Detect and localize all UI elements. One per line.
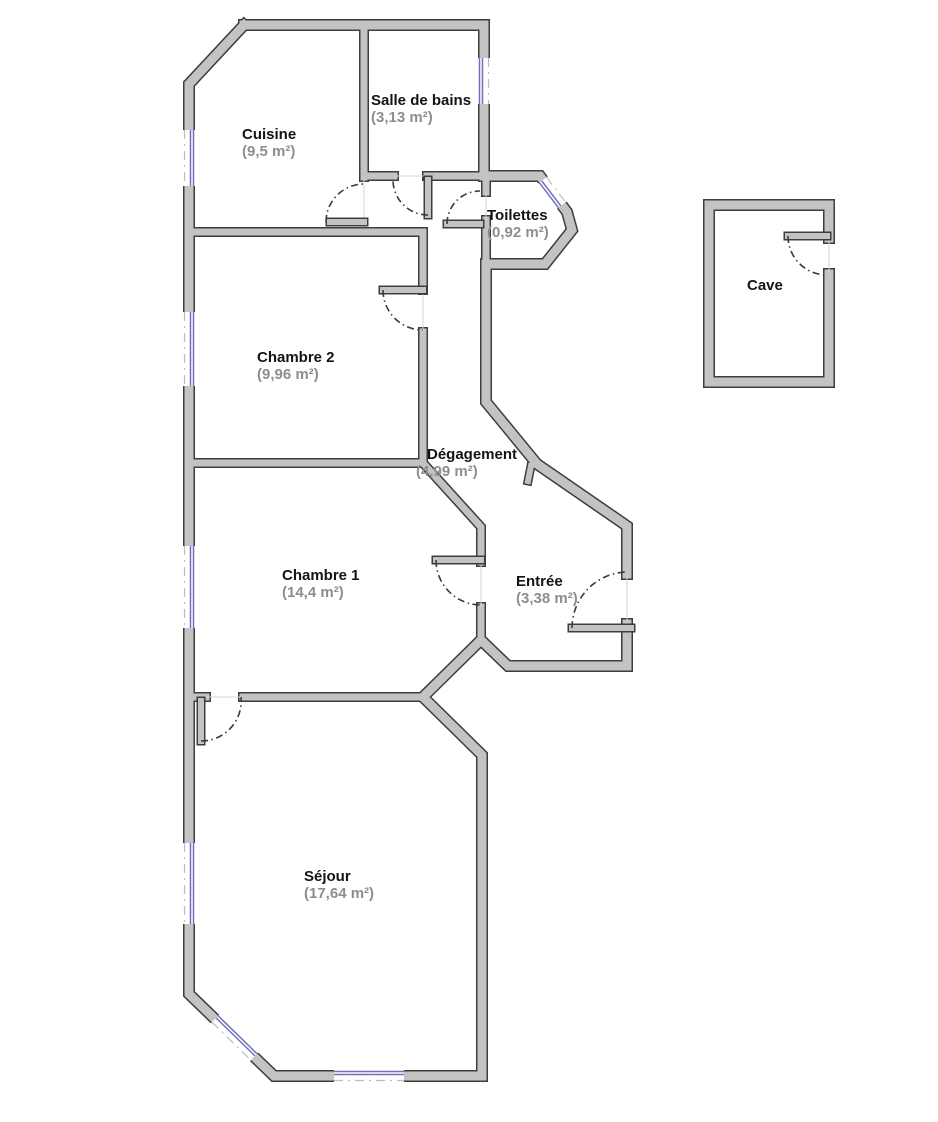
door-arc-entree xyxy=(572,572,627,628)
floor-plan-drawing xyxy=(0,0,938,1122)
window-chambre1 xyxy=(185,546,194,628)
window-toilettes xyxy=(539,177,565,207)
room-area-label: (3,13 m²) xyxy=(371,109,471,126)
room-area-label: (4,99 m²) xyxy=(416,463,517,480)
door-arc-salle-de-bains xyxy=(393,180,428,215)
room-name-label: Séjour xyxy=(304,868,351,885)
room-name-label: Cave xyxy=(747,277,783,294)
room-area-label: (14,4 m²) xyxy=(282,584,360,601)
door-arc-sejour xyxy=(201,697,241,741)
room-label-chambre-2: Chambre 2 (9,96 m²) xyxy=(257,349,335,383)
room-label-cuisine: Cuisine (9,5 m²) xyxy=(242,126,296,160)
window-chambre2 xyxy=(185,312,194,386)
room-area-label: (3,38 m²) xyxy=(516,590,578,607)
room-area-label: (9,5 m²) xyxy=(242,143,296,160)
perimeter-wall-lower-fill xyxy=(189,25,627,1076)
wall-outlines-layer xyxy=(189,25,829,1076)
window-sejour-left xyxy=(185,843,194,924)
room-area-label: (0,92 m²) xyxy=(487,224,549,241)
wall-fill xyxy=(528,466,531,481)
room-area-label: (17,64 m²) xyxy=(304,885,374,902)
floor-plan: Cuisine (9,5 m²) Salle de bains (3,13 m²… xyxy=(0,0,938,1122)
door-arc-chambre2 xyxy=(383,290,423,330)
room-area-label: (9,96 m²) xyxy=(257,366,335,383)
room-label-degagement: Dégagement (4,99 m²) xyxy=(427,446,517,480)
door-arc-toilettes xyxy=(447,191,480,224)
room-label-salle-de-bains: Salle de bains (3,13 m²) xyxy=(371,92,471,126)
door-arc-cave xyxy=(788,236,827,275)
window-salle-de-bains xyxy=(480,58,489,104)
room-label-entree: Entrée (3,38 m²) xyxy=(516,573,578,607)
room-name-label: Chambre 2 xyxy=(257,349,335,366)
room-name-label: Entrée xyxy=(516,573,563,590)
perimeter-wall-lower xyxy=(189,25,627,1076)
door-arc-chambre1 xyxy=(436,560,481,605)
room-name-label: Salle de bains xyxy=(371,92,471,109)
room-name-label: Toilettes xyxy=(487,207,548,224)
door-arc-cuisine xyxy=(326,184,364,222)
window-sejour-chamfer xyxy=(212,1016,257,1060)
room-name-label: Chambre 1 xyxy=(282,567,360,584)
room-name-label: Cuisine xyxy=(242,126,296,143)
room-label-chambre-1: Chambre 1 (14,4 m²) xyxy=(282,567,360,601)
room-label-cave: Cave xyxy=(747,277,783,294)
window-sejour-bottom xyxy=(334,1072,404,1081)
room-label-sejour: Séjour (17,64 m²) xyxy=(304,868,374,902)
window-cuisine xyxy=(185,130,194,186)
wall-fill-layer xyxy=(189,25,829,1076)
room-label-toilettes: Toilettes (0,92 m²) xyxy=(487,207,549,241)
room-name-label: Dégagement xyxy=(427,446,517,463)
